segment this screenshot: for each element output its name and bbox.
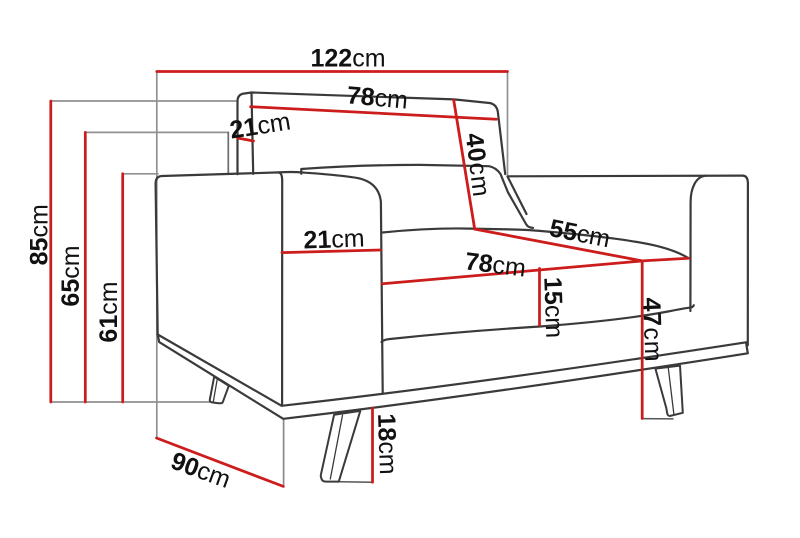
- svg-text:18cm: 18cm: [372, 413, 402, 475]
- svg-text:15cm: 15cm: [538, 276, 568, 338]
- svg-text:65cm: 65cm: [57, 245, 85, 306]
- svg-text:78cm: 78cm: [346, 81, 409, 114]
- svg-text:21cm: 21cm: [303, 224, 365, 254]
- svg-text:85cm: 85cm: [26, 204, 54, 265]
- svg-text:61cm: 61cm: [95, 281, 123, 342]
- svg-text:47cm: 47cm: [637, 297, 667, 363]
- svg-text:122cm: 122cm: [310, 45, 385, 73]
